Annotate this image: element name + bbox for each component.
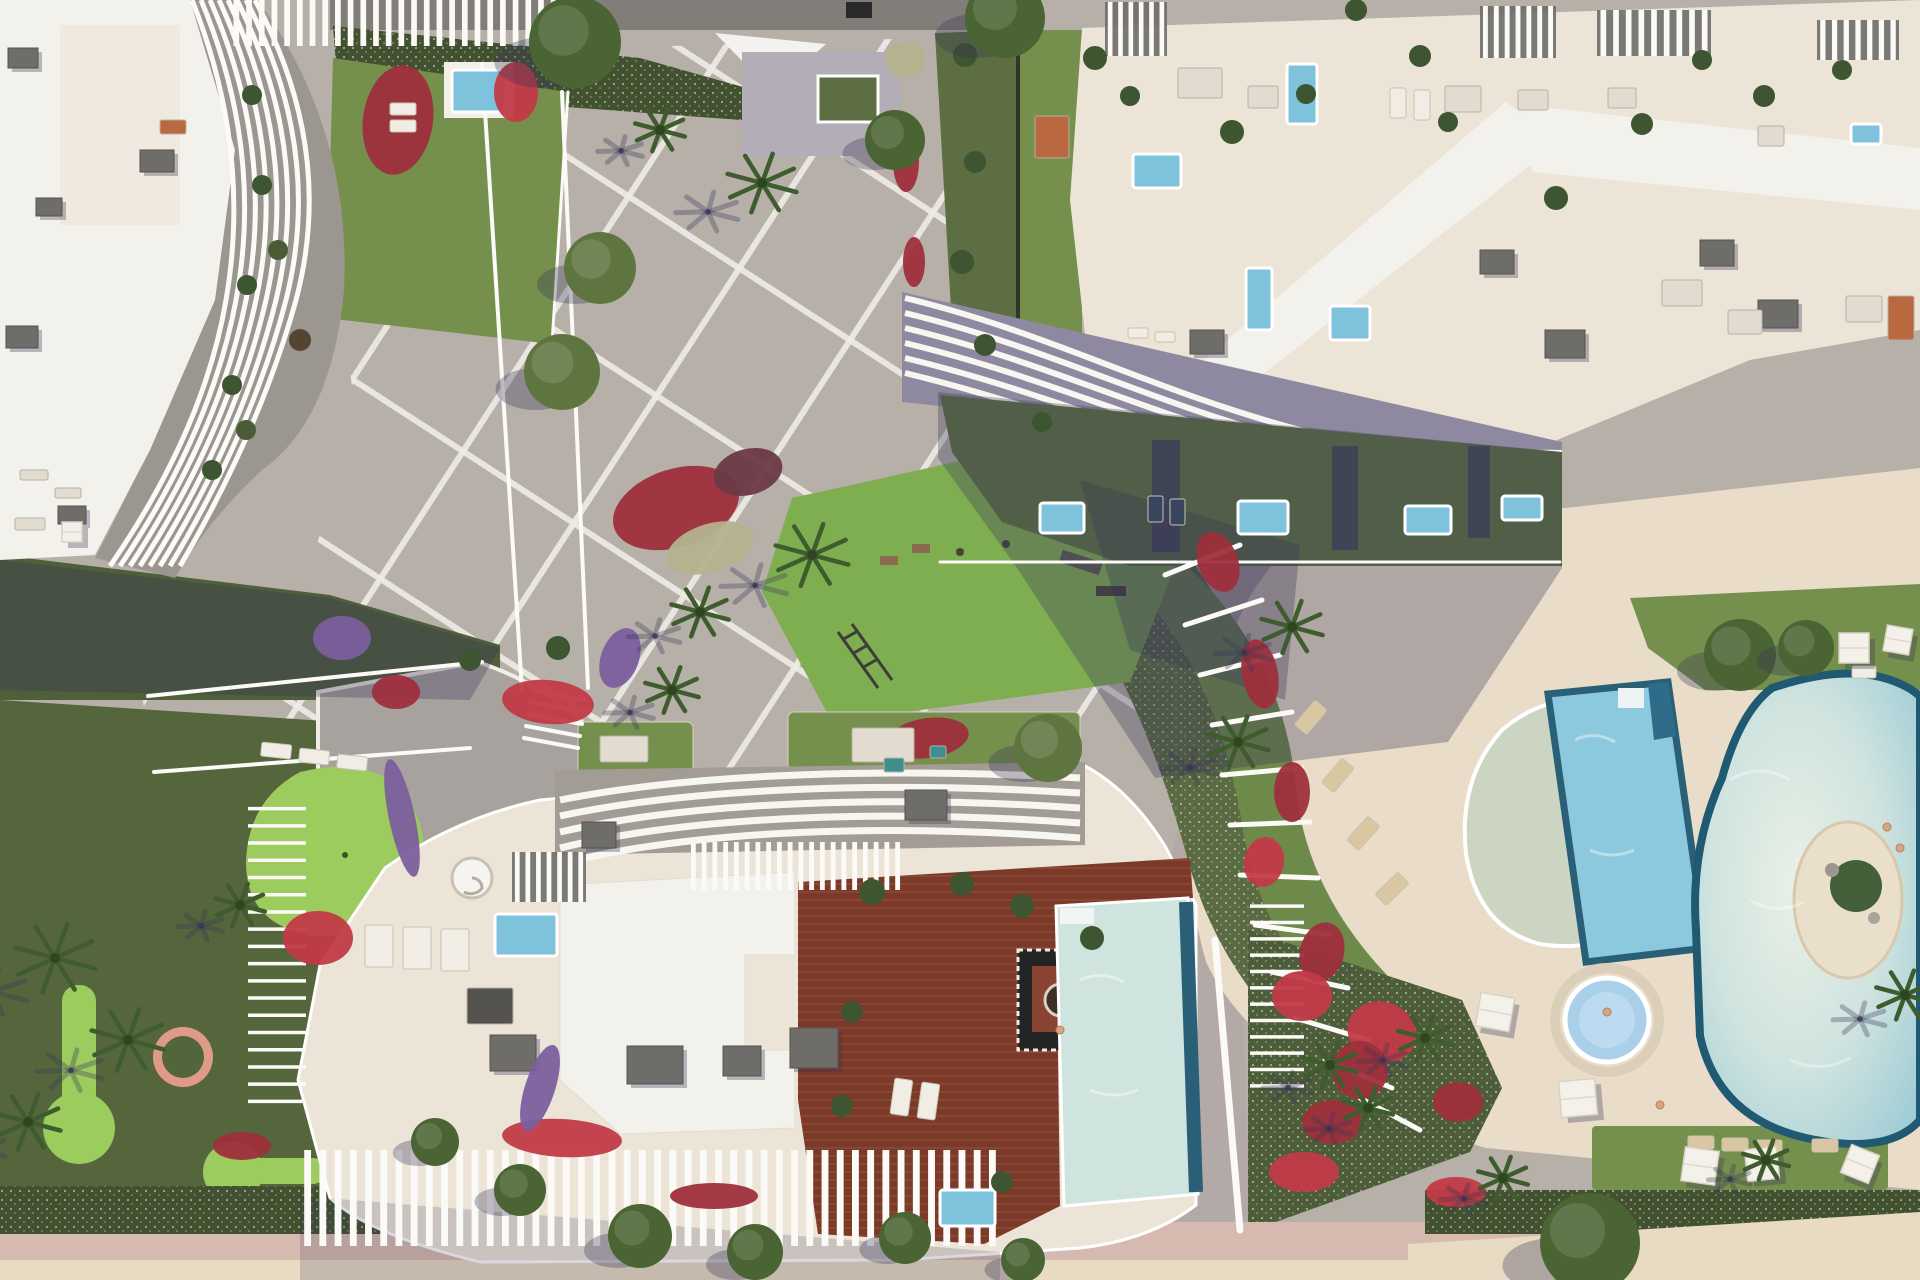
plunge-pool bbox=[1040, 503, 1084, 533]
plunge-pool bbox=[1238, 501, 1288, 534]
roof-box bbox=[6, 326, 38, 348]
palm-crown bbox=[1233, 737, 1243, 747]
furniture-set bbox=[1888, 296, 1914, 340]
furniture-set bbox=[1248, 86, 1278, 108]
rooftop-pool-rim bbox=[1186, 902, 1196, 1192]
shrub bbox=[1345, 0, 1367, 21]
sun-lounger bbox=[390, 120, 416, 132]
shrub bbox=[459, 649, 481, 671]
palm-crown bbox=[123, 1035, 133, 1045]
sun-lounger bbox=[403, 927, 431, 969]
island-rock bbox=[1825, 863, 1839, 877]
flower-bed bbox=[670, 1183, 758, 1209]
furniture-set bbox=[160, 120, 186, 134]
palm-crown bbox=[1900, 990, 1910, 1000]
shrub bbox=[1120, 86, 1140, 106]
roof-box bbox=[140, 150, 174, 172]
balcony-plant-dry bbox=[289, 329, 311, 351]
shrub bbox=[546, 636, 570, 660]
tree-highlight bbox=[538, 5, 589, 56]
furniture-set bbox=[1178, 68, 1222, 98]
pergola-base bbox=[1105, 2, 1167, 56]
roof-box bbox=[1190, 330, 1224, 354]
shrub bbox=[1631, 113, 1653, 135]
aerial-render bbox=[0, 0, 1920, 1280]
flower-bed bbox=[283, 911, 353, 965]
furniture-set bbox=[600, 736, 648, 762]
flower-bed bbox=[1269, 1152, 1339, 1192]
roof-box bbox=[8, 48, 38, 68]
furniture-set bbox=[852, 728, 914, 762]
sun-lounger bbox=[1390, 88, 1406, 118]
flower-bed bbox=[1274, 762, 1310, 822]
shrub bbox=[1010, 894, 1034, 918]
palm-crown bbox=[1761, 1155, 1771, 1165]
tree-highlight bbox=[1005, 1242, 1029, 1266]
sun-lounger bbox=[1414, 90, 1430, 120]
shrub bbox=[202, 460, 222, 480]
shrub bbox=[1080, 926, 1104, 950]
furniture-set bbox=[15, 518, 45, 530]
sun-lounger bbox=[365, 925, 393, 967]
flower-bed bbox=[213, 1132, 271, 1160]
person bbox=[1896, 844, 1904, 852]
tree-highlight bbox=[733, 1230, 764, 1261]
palm-shadow bbox=[1161, 768, 1190, 769]
plunge-pool bbox=[1330, 306, 1370, 340]
sun-lounger bbox=[390, 103, 416, 115]
tree-highlight bbox=[614, 1210, 649, 1245]
golf-hole bbox=[342, 852, 348, 858]
tree-highlight bbox=[532, 342, 574, 384]
roof-box bbox=[490, 1035, 536, 1071]
sun-lounger bbox=[299, 748, 330, 765]
shrub bbox=[1544, 186, 1568, 210]
sun-lounger bbox=[1128, 328, 1148, 338]
shrub bbox=[1409, 45, 1431, 67]
rooftop-pool-steps bbox=[1060, 908, 1094, 924]
furniture-set bbox=[1608, 88, 1636, 108]
flower-bed bbox=[372, 675, 420, 709]
sun-lounger bbox=[441, 929, 469, 971]
palm-shadow bbox=[1215, 653, 1244, 654]
palm-shadow bbox=[721, 585, 755, 586]
shrub bbox=[831, 1095, 853, 1117]
tree-highlight bbox=[571, 239, 611, 279]
flower-bed bbox=[313, 616, 371, 660]
flower-bed bbox=[885, 42, 925, 78]
shrub bbox=[1438, 112, 1458, 132]
island-rock-2 bbox=[1868, 912, 1880, 924]
roof-box bbox=[790, 1028, 838, 1068]
furniture-set bbox=[55, 488, 81, 498]
palm-crown bbox=[50, 953, 60, 963]
tree-highlight bbox=[499, 1169, 528, 1198]
palm-crown bbox=[695, 607, 705, 617]
furniture-set bbox=[1662, 280, 1702, 306]
shrub bbox=[222, 375, 242, 395]
flower-bed bbox=[1433, 1082, 1483, 1122]
balcony-plant-2 bbox=[236, 420, 256, 440]
tree-highlight bbox=[871, 116, 904, 149]
furniture-set bbox=[467, 988, 513, 1024]
roof-box bbox=[1700, 240, 1734, 266]
tree-highlight bbox=[1550, 1203, 1605, 1258]
palm-crown bbox=[1363, 1103, 1373, 1113]
shrub bbox=[950, 250, 974, 274]
flower-bed bbox=[1272, 971, 1332, 1021]
shrub bbox=[1753, 85, 1775, 107]
person bbox=[1656, 1101, 1664, 1109]
sun-lounger bbox=[261, 742, 292, 759]
balcony-plant bbox=[268, 240, 288, 260]
plunge-pool bbox=[1851, 124, 1881, 144]
furniture-set bbox=[1445, 86, 1481, 112]
palm-crown bbox=[23, 1117, 33, 1127]
roof-box bbox=[1545, 330, 1585, 358]
palm-crown bbox=[1325, 1060, 1335, 1070]
shrub bbox=[1832, 60, 1852, 80]
sun-lounger bbox=[1148, 496, 1163, 522]
person bbox=[1883, 823, 1891, 831]
tree-highlight bbox=[416, 1123, 442, 1149]
shrub bbox=[1220, 120, 1244, 144]
palm-crown bbox=[1287, 622, 1297, 632]
roof-box bbox=[1480, 250, 1514, 274]
roof-box bbox=[36, 198, 62, 216]
spa-water bbox=[1579, 992, 1635, 1048]
plunge-pool bbox=[1133, 154, 1181, 188]
shrub bbox=[859, 879, 885, 905]
shrub bbox=[1032, 412, 1052, 432]
shrub bbox=[974, 334, 996, 356]
plunge-pool bbox=[495, 914, 557, 956]
palm-crown bbox=[655, 125, 665, 135]
shrub bbox=[252, 175, 272, 195]
tree-highlight bbox=[1784, 626, 1815, 657]
person bbox=[1056, 1026, 1064, 1034]
sun-lounger bbox=[1812, 1139, 1838, 1152]
palm-crown bbox=[667, 685, 677, 695]
tree-highlight bbox=[884, 1217, 913, 1246]
furniture-set bbox=[930, 746, 946, 758]
plunge-pool bbox=[940, 1190, 995, 1226]
plunge-pool bbox=[1405, 506, 1451, 534]
palm-crown bbox=[235, 900, 245, 910]
shrub bbox=[242, 85, 262, 105]
furniture-set bbox=[1758, 126, 1784, 146]
shrub bbox=[991, 1171, 1013, 1193]
shrub bbox=[1692, 50, 1712, 70]
roof-box bbox=[582, 822, 616, 848]
planter-bush bbox=[162, 1036, 204, 1078]
palm-crown bbox=[807, 550, 817, 560]
roof-box bbox=[627, 1046, 683, 1084]
shrub bbox=[1083, 46, 1107, 70]
lap-pool-steps bbox=[1618, 688, 1644, 708]
tree-highlight bbox=[1711, 626, 1751, 666]
palm-crown bbox=[1498, 1173, 1508, 1183]
sun-lounger bbox=[1170, 499, 1185, 525]
shrub bbox=[841, 1001, 863, 1023]
plunge-pool bbox=[1246, 268, 1272, 330]
scene-svg bbox=[0, 0, 1920, 1280]
palm-shadow bbox=[676, 212, 708, 213]
rooftop-pool bbox=[1056, 898, 1198, 1206]
shrub bbox=[1296, 84, 1316, 104]
flower-bed bbox=[903, 237, 925, 287]
roof-box bbox=[723, 1046, 761, 1076]
building-c-white-block bbox=[598, 898, 690, 962]
furniture-set bbox=[884, 758, 904, 772]
sun-lounger bbox=[337, 754, 368, 771]
shrub bbox=[237, 275, 257, 295]
patio-planter bbox=[818, 76, 878, 122]
roof-box bbox=[905, 790, 947, 820]
pergola-line bbox=[1230, 822, 1310, 825]
shrub bbox=[950, 872, 974, 896]
road bbox=[330, 0, 1034, 30]
sun-lounger bbox=[1155, 332, 1175, 342]
person bbox=[1603, 1008, 1611, 1016]
furniture-set bbox=[20, 470, 48, 480]
furniture-set bbox=[1035, 116, 1069, 158]
parked-car bbox=[846, 2, 872, 18]
plunge-pool bbox=[1502, 496, 1542, 520]
shrub bbox=[964, 151, 986, 173]
furniture-set bbox=[1518, 90, 1548, 110]
palm-shadow bbox=[37, 1070, 71, 1071]
palm-crown bbox=[1420, 1033, 1430, 1043]
furniture-set bbox=[1846, 296, 1882, 322]
furniture-set bbox=[1728, 310, 1762, 334]
palm-crown bbox=[757, 178, 767, 188]
roof-box bbox=[1758, 300, 1798, 328]
tree-highlight bbox=[1021, 721, 1058, 758]
